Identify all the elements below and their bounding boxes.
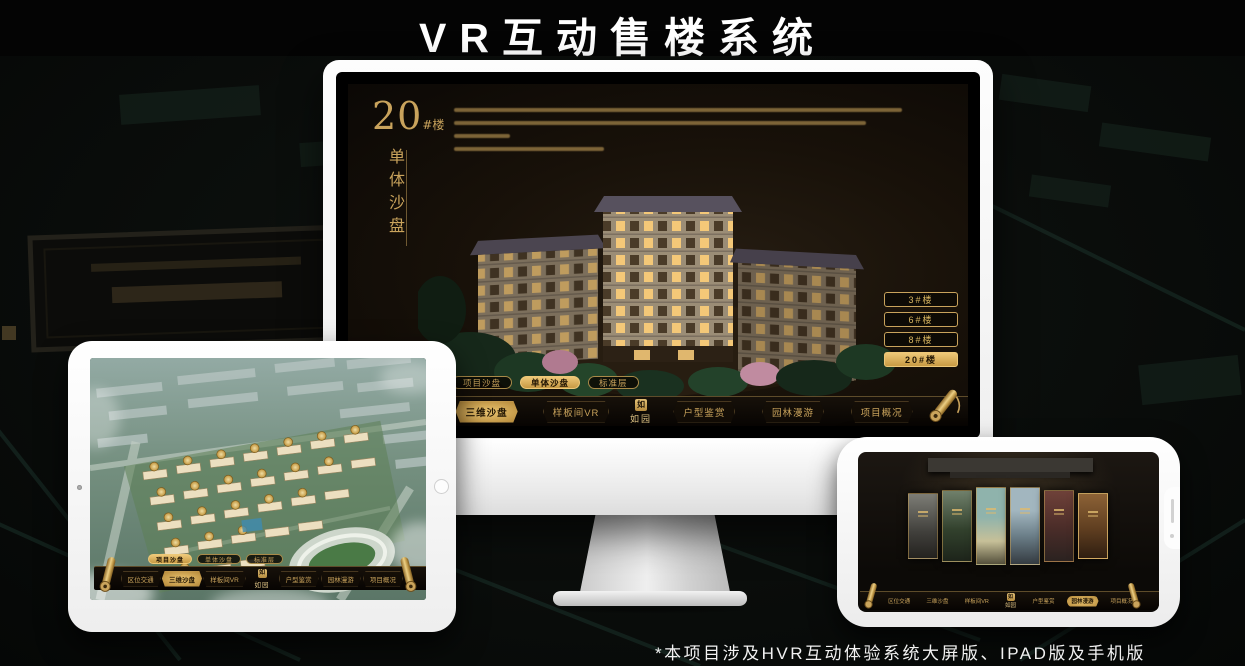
heading-divider: [406, 150, 407, 246]
nav-item[interactable]: 园林漫游: [1067, 596, 1099, 607]
phone-notch: [1164, 487, 1180, 549]
sub-tab[interactable]: 标准层: [588, 376, 639, 389]
floor-button[interactable]: 6#楼: [884, 312, 958, 327]
gallery-panel[interactable]: [908, 493, 938, 559]
page: VR互动售楼系统 20#楼 单体沙盘: [0, 0, 1245, 666]
nav-item[interactable]: 园林漫游: [762, 401, 824, 423]
sub-tab[interactable]: 单体沙盘: [197, 554, 241, 564]
nav-item[interactable]: 样板间VR: [960, 596, 994, 607]
building-number: 20: [372, 94, 422, 138]
paragraph-text-line: [454, 134, 510, 138]
floor-button-group: 3#楼6#楼8#楼20#楼: [884, 292, 958, 372]
brand-seal-icon: 如: [635, 399, 647, 411]
gallery-panel[interactable]: [976, 487, 1006, 565]
scroll-menu-icon[interactable]: [926, 386, 962, 426]
building-render-image: [418, 150, 898, 402]
gallery-panels: [908, 486, 1112, 566]
brand-seal-icon: 如: [1007, 593, 1015, 601]
nav-item[interactable]: 三维沙盘: [921, 596, 953, 607]
nav-item[interactable]: 样板间VR: [543, 401, 610, 423]
paragraph-text-line: [454, 121, 866, 125]
nav-group-right: 户型鉴赏园林漫游项目概况: [278, 571, 405, 587]
floor-button[interactable]: 3#楼: [884, 292, 958, 307]
gallery-panel[interactable]: [942, 490, 972, 562]
brand-logo[interactable]: 如 如园: [255, 569, 270, 589]
gate-beam-inner: [950, 472, 1070, 478]
monitor-sub-tabs: 项目沙盘单体沙盘标准层: [452, 376, 639, 389]
building-heading: 20#楼: [372, 96, 444, 136]
nav-group-right: 户型鉴赏园林漫游项目概况: [660, 401, 926, 423]
nav-item[interactable]: 户型鉴赏: [1028, 596, 1060, 607]
sub-tab[interactable]: 项目沙盘: [452, 376, 512, 389]
scroll-menu-icon[interactable]: [862, 582, 882, 610]
background-plaque: [30, 226, 364, 349]
brand-logo-text: 如园: [255, 579, 270, 589]
nav-item[interactable]: 项目概况: [851, 401, 913, 423]
footer-note: *本项目涉及HVR互动体验系统大屏版、IPAD版及手机版: [655, 639, 1146, 664]
tablet-sub-tabs: 项目沙盘单体沙盘标准层: [148, 554, 283, 564]
nav-group-left: 区位交通三维沙盘样板间VR: [120, 571, 247, 587]
nav-item[interactable]: 三维沙盘: [162, 571, 202, 587]
tablet-home-button[interactable]: [434, 479, 449, 494]
page-title: VR互动售楼系统: [0, 4, 1245, 64]
sub-tab[interactable]: 标准层: [246, 554, 283, 564]
phone-screen: 区位交通三维沙盘样板间VR 如 如园 户型鉴赏园林漫游项目概况: [858, 452, 1159, 612]
nav-item[interactable]: 三维沙盘: [456, 401, 518, 423]
scroll-menu-icon[interactable]: [96, 556, 122, 594]
gallery-panel[interactable]: [1010, 487, 1040, 565]
gallery-panel[interactable]: [1078, 493, 1108, 559]
sub-tab[interactable]: 项目沙盘: [148, 554, 192, 564]
nav-item[interactable]: 样板间VR: [203, 571, 246, 587]
gate-beam: [928, 458, 1093, 472]
nav-item[interactable]: 园林漫游: [321, 571, 361, 587]
nav-item[interactable]: 户型鉴赏: [673, 401, 735, 423]
brand-seal-icon: 如: [258, 569, 267, 578]
phone-camera-icon: [1170, 534, 1174, 538]
phone-device: 区位交通三维沙盘样板间VR 如 如园 户型鉴赏园林漫游项目概况: [837, 437, 1180, 627]
brand-logo-text: 如园: [1005, 601, 1016, 609]
tablet-camera-icon: [77, 485, 82, 490]
building-subtitle: 单体沙盘: [382, 148, 406, 240]
nav-item[interactable]: 户型鉴赏: [279, 571, 319, 587]
floor-button[interactable]: 20#楼: [884, 352, 958, 367]
paragraph-text-line: [454, 108, 902, 112]
scroll-menu-icon[interactable]: [1123, 582, 1143, 610]
phone-speaker-icon: [1171, 499, 1174, 523]
tablet-screen: 项目沙盘单体沙盘标准层 区位交通三维沙盘样板间VR 如 如园 户型鉴赏园林漫游项…: [90, 358, 426, 600]
gallery-panel[interactable]: [1044, 490, 1074, 562]
nav-group-left: 区位交通三维沙盘样板间VR: [880, 596, 997, 607]
phone-nav-bar: 区位交通三维沙盘样板间VR 如 如园 户型鉴赏园林漫游项目概况: [860, 591, 1159, 610]
tablet-nav-bar: 区位交通三维沙盘样板间VR 如 如园 户型鉴赏园林漫游项目概况: [94, 566, 426, 590]
brand-logo[interactable]: 如 如园: [630, 399, 652, 425]
monitor-stand-foot: [553, 591, 747, 606]
monitor-stand-neck: [575, 513, 735, 593]
brand-logo-text: 如园: [630, 412, 652, 425]
sub-tab[interactable]: 单体沙盘: [520, 376, 580, 389]
building-unit: #楼: [422, 118, 444, 132]
scroll-menu-icon[interactable]: [394, 556, 420, 594]
nav-item[interactable]: 区位交通: [121, 571, 161, 587]
floor-button[interactable]: 8#楼: [884, 332, 958, 347]
brand-logo[interactable]: 如 如园: [1005, 593, 1016, 609]
nav-item[interactable]: 区位交通: [883, 596, 915, 607]
tablet-device: 项目沙盘单体沙盘标准层 区位交通三维沙盘样板间VR 如 如园 户型鉴赏园林漫游项…: [68, 341, 456, 632]
